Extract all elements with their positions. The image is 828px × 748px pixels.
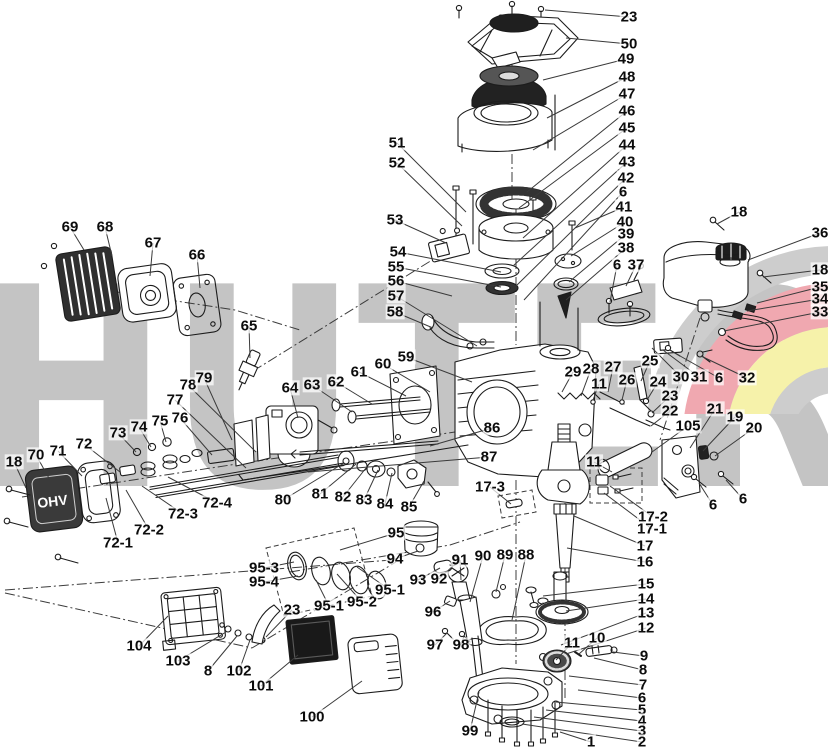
leader-line-95-4 [264, 576, 298, 582]
piston [404, 521, 438, 556]
leader-line-101 [261, 655, 298, 686]
breather-parts [492, 585, 506, 599]
leader-line-96 [433, 601, 450, 612]
diagram-canvas: HUTER [0, 0, 828, 748]
leader-line-95-3 [264, 562, 294, 568]
insulator-plates [234, 415, 270, 466]
leader-line-9 [613, 652, 644, 656]
starter-cover [468, 14, 578, 64]
leader-line-4 [546, 710, 642, 721]
valve-cover: OHV [24, 465, 83, 533]
leader-line-102 [239, 640, 250, 671]
air-filter-element [286, 616, 338, 665]
muffler-guard [55, 246, 121, 322]
leader-line-51 [397, 143, 466, 212]
leader-line-6g [578, 690, 642, 698]
leader-line-18a [717, 212, 739, 224]
leader-line-93 [418, 568, 440, 580]
leader-line-90 [470, 556, 483, 602]
leader-line-100 [312, 681, 362, 717]
leader-line-98 [461, 636, 464, 645]
leader-line-23a [545, 10, 629, 17]
head-gasket [390, 366, 440, 444]
pan-gasket [478, 617, 546, 645]
piston-rings [285, 550, 389, 601]
leader-line-5 [556, 702, 642, 710]
blower-housing [458, 101, 552, 152]
governor-gear [540, 645, 618, 672]
leader-line-7 [569, 676, 643, 685]
oil-pan [462, 668, 562, 727]
leader-line-52 [397, 163, 462, 226]
muffler [117, 262, 178, 323]
leader-line-8b [594, 658, 643, 670]
leader-line-49 [543, 59, 626, 80]
leader-line-41 [575, 207, 624, 228]
choke-arm [252, 605, 280, 644]
leader-line-48 [547, 77, 627, 118]
leader-line-88 [512, 555, 526, 620]
leader-line-97 [435, 633, 447, 645]
exploded-parts-diagram: HUTER [0, 0, 828, 748]
leader-line-95-1b [357, 567, 390, 590]
air-filter-housing [158, 587, 227, 650]
